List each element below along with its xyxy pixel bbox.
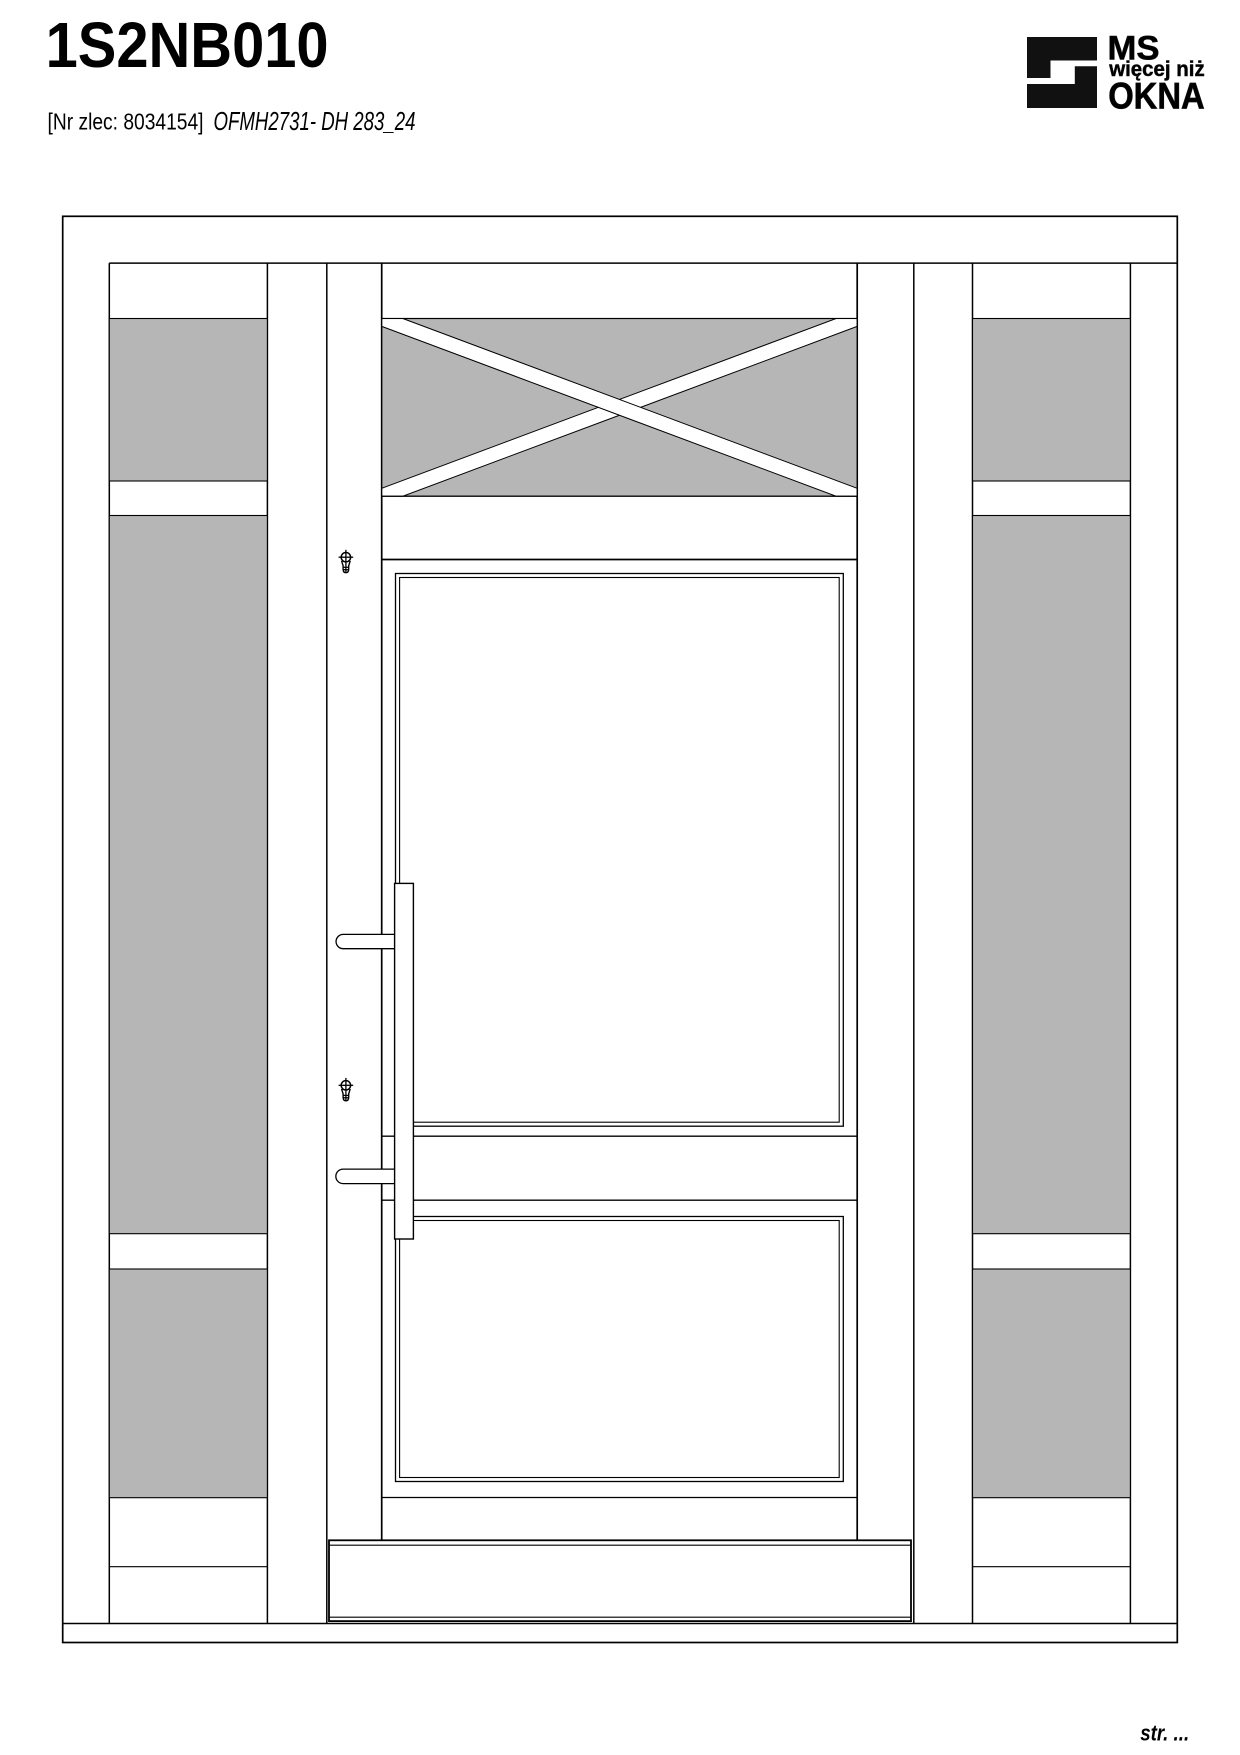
- svg-text:1S2NB010: 1S2NB010: [46, 9, 329, 81]
- svg-text:str. ...: str. ...: [1140, 1721, 1189, 1746]
- svg-text:[Nr zlec: 8034154]: [Nr zlec: 8034154]: [48, 108, 204, 134]
- svg-text:OFMH2731- DH 283_24: OFMH2731- DH 283_24: [214, 106, 416, 136]
- svg-text:OKNA: OKNA: [1108, 74, 1205, 116]
